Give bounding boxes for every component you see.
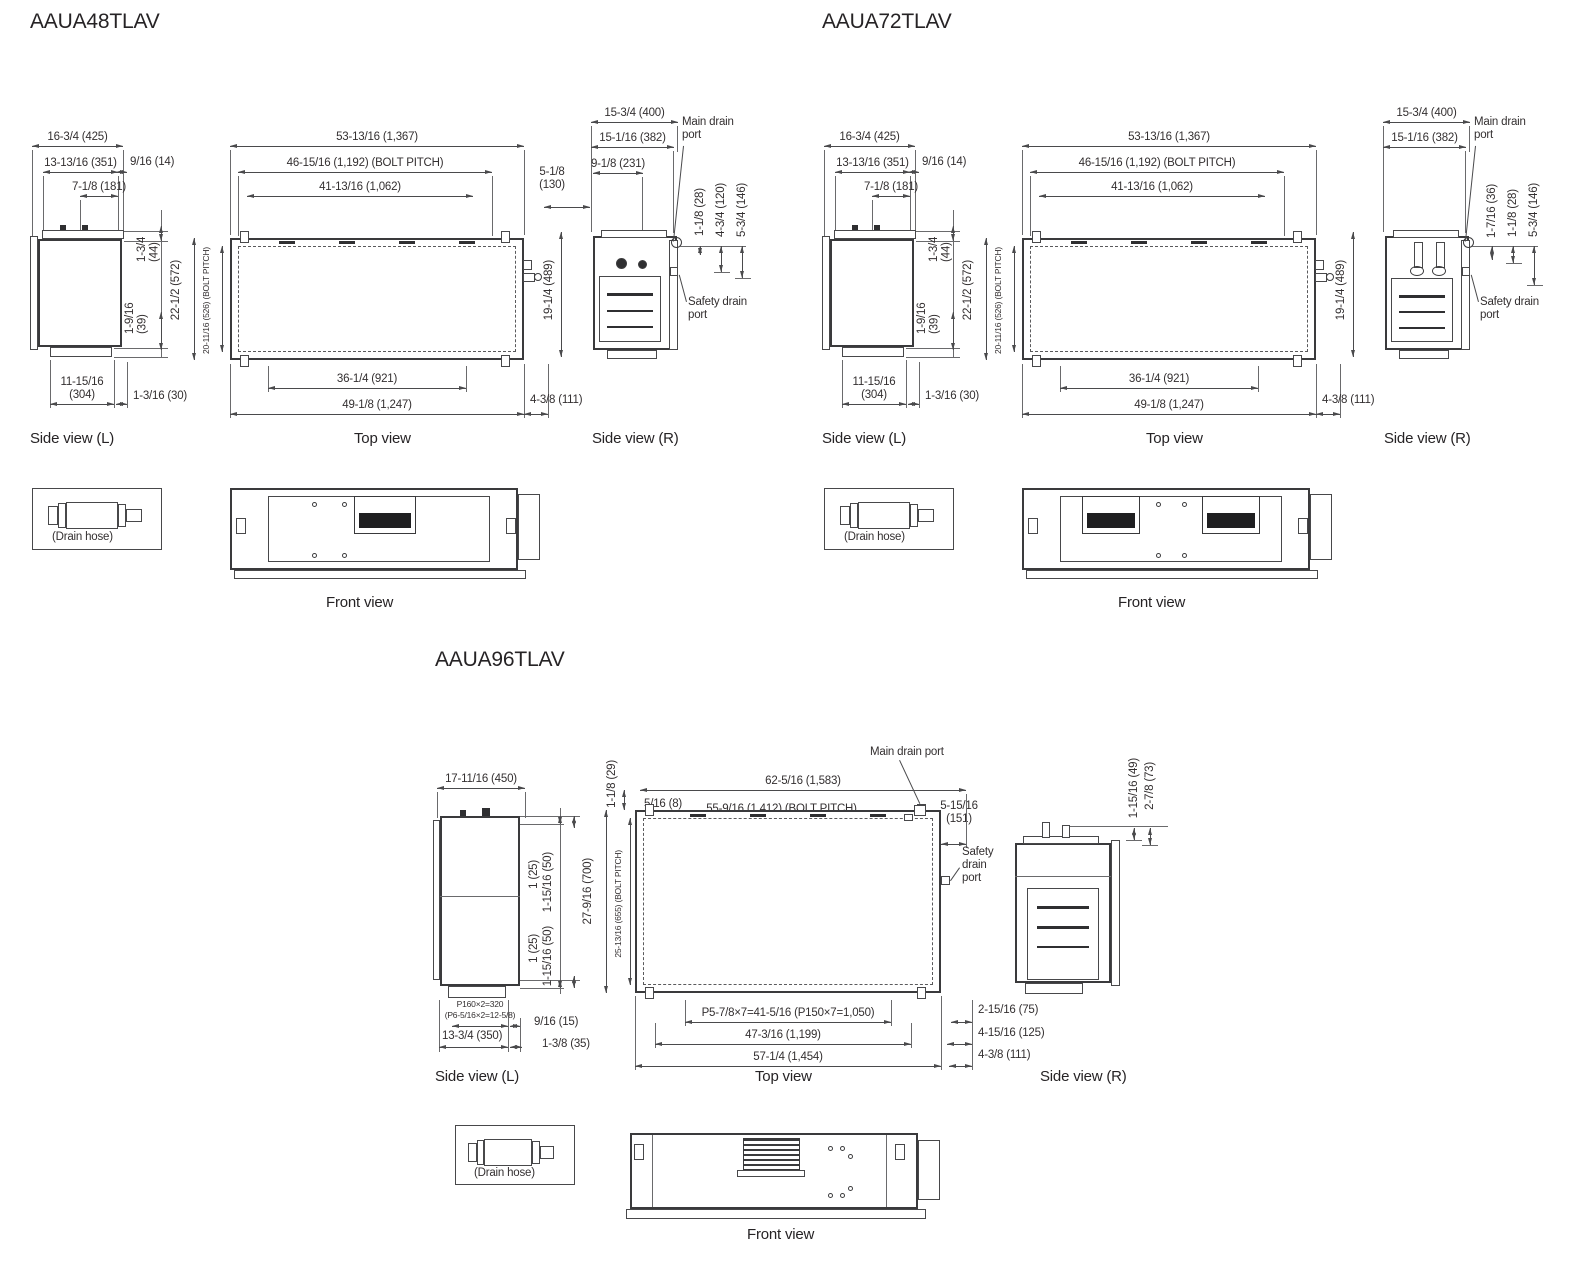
ext-line [972,1000,973,1070]
bolt [874,225,880,230]
bolt-tab [917,987,926,999]
callout-main-drain: Main drain port [1474,116,1538,142]
ext-line [1469,126,1470,152]
dim-line: 36-1/4 (921) [1060,388,1258,389]
unit-flange [607,350,657,359]
callout-safety-drain: Safety drain port [688,296,754,322]
dim-label: 41-13/16 (1,062) [319,181,401,194]
ext-line [835,176,836,236]
dim-label-v: 22-1/2 (572) [170,260,182,320]
bolt-dot [1182,502,1187,507]
bolt-dot [312,502,317,507]
drain-hose-part [484,1139,532,1166]
dim-label-v: 25-13/16 (655) (BOLT PITCH) [614,850,623,958]
bracket [1028,518,1038,534]
louver-panel [599,276,661,342]
ext-line [520,988,564,989]
ext-line [941,996,942,1070]
drain-hose-part [118,504,126,527]
pipe [1042,822,1050,838]
bracket [895,1144,905,1160]
drain-hose-part [48,506,58,525]
dim-label: 13-3/4 (350) [442,1030,502,1043]
dim-label: 13-13/16 (351) [44,157,117,170]
dim-label: P160×2=320 [457,1000,504,1010]
unit-top-inner-dashed [643,818,933,985]
unit-flange [50,347,112,357]
dim-line: 15-3/4 (400) [591,122,678,123]
bracket [634,1144,644,1160]
callout-safety-drain: Safety drain port [1480,296,1546,322]
callout-main-drain: Main drain port [870,746,944,759]
dim-line: 36-1/4 (921) [268,388,466,389]
front-protrusion [918,1140,940,1200]
view-label-side-r: Side view (R) [1040,1068,1127,1085]
louver-line [1037,946,1089,948]
ext-line [230,150,231,235]
model-title: AAUA48TLAV [30,10,160,34]
dim-label: 49-1/8 (1,247) [342,399,411,412]
callout-main-drain: Main drain port [682,116,746,142]
dim-label: 15-3/4 (400) [604,107,664,120]
unit-body [830,239,914,347]
leader-line [950,867,960,881]
unit-flange [842,347,904,357]
dim-label: 41-13/16 (1,062) [1111,181,1193,194]
dim-line: 15-3/4 (400) [1383,122,1470,123]
dim-line-v [624,790,625,810]
flange-mark [750,814,766,817]
dim-line: 11-15/16 (304) [50,404,114,405]
dim-label: 46-15/16 (1,192) (BOLT PITCH) [287,157,444,170]
bracket [236,518,246,534]
dim-line-v [1014,246,1015,352]
ext-line [635,996,636,1070]
bolt-tab [1032,355,1041,367]
dim-line: 11-15/16 (304) [842,404,906,405]
dim-label-v: 19-1/4 (489) [1335,260,1347,320]
bolt-dot [840,1146,845,1151]
bolt-dot [828,1193,833,1198]
dim-line [452,1026,508,1027]
front-protrusion [518,494,540,560]
safety-drain-port [670,267,678,276]
ext-line [520,824,564,825]
ext-line [842,360,843,408]
dim-line-v [630,818,631,985]
ext-line [32,150,33,236]
drain-hose-part [477,1140,484,1165]
flange-mark [339,241,355,244]
dim-label-v: 19-1/4 (489) [543,260,555,320]
dim-label-v: 1-9/16 (39) [916,286,941,334]
pipe [1436,242,1445,268]
dim-line: 15-1/16 (382) [1383,147,1466,148]
drain-hose-part [540,1146,554,1159]
ext-line [1258,366,1259,392]
pipe-fitting [534,273,542,281]
dim-label-v: 20-11/16 (526) (BOLT PITCH) [202,247,211,354]
dim-line-v [1492,246,1493,260]
vent-louver [1087,513,1135,527]
dim-label: 17-11/16 (450) [445,773,517,786]
ext-line [1383,126,1384,232]
flange-mark [459,241,475,244]
dim-label: 4-3/8 (111) [978,1049,1030,1062]
ext-line [1022,364,1023,418]
ext-line [673,151,674,233]
bolt-tab [645,804,654,816]
dim-line: 47-3/16 (1,199) [655,1044,911,1045]
dim-line: 7-1/8 (181) [872,196,910,197]
dim-line: 57-1/4 (1,454) [635,1066,941,1067]
dim-label: 4-3/8 (111) [530,394,582,407]
ext-line [437,792,438,818]
ext-line [1527,285,1543,286]
dim-label: 57-1/4 (1,454) [753,1051,822,1064]
louver-panel [1027,888,1099,980]
ext-line [43,176,44,236]
dim-line-v [1353,232,1354,357]
dim-line-v [700,246,701,255]
dim-label: 53-13/16 (1,367) [1128,131,1210,144]
unit-right-strip [1461,240,1470,350]
dim-line: 49-1/8 (1,247) [1022,414,1316,415]
dim-line-v [721,246,722,272]
bolt-dot [312,553,317,558]
dim-label: 53-13/16 (1,367) [336,131,418,144]
dim-line-v [606,810,607,993]
bolt-dot [848,1154,853,1159]
bolt-tab [645,987,654,999]
dim-label: 11-15/16 (304) [52,376,112,402]
vent-louver [359,513,411,527]
dim-label: 36-1/4 (921) [1129,373,1189,386]
ext-line [1022,150,1023,235]
dim-line: 62-5/16 (1,583) [640,790,966,791]
leader-line [679,275,687,302]
bolt-tab [501,231,510,243]
front-base [626,1209,926,1219]
section-aaua96: AAUA96TLAV 17-11/16 (450) 1 (25) 1-15/16… [430,648,1210,1268]
dim-label: 5-15/16 (151) [936,800,982,826]
dim-label: 7-1/8 (181) [72,181,126,194]
view-label-top: Top view [1146,430,1203,447]
view-label-front: Front view [747,1226,814,1243]
dim-line [116,404,127,405]
dim-label-v: 2-7/8 (73) [1144,762,1156,810]
bolt-dot [1182,553,1187,558]
pipe [1062,825,1070,838]
unit-top-plate [1393,230,1459,238]
pipe-stub [1315,260,1324,270]
dim-line-v [161,226,162,241]
flange-mark [399,241,415,244]
port-circle [616,258,627,269]
dim-label-v: 1 (25) [528,860,540,889]
pipe-stub [904,814,913,821]
dim-line: 15-1/16 (382) [591,147,674,148]
drain-hose-label: (Drain hose) [844,531,905,544]
dim-label: 11-15/16 (304) [844,376,904,402]
ext-line [1070,826,1168,827]
flange-mark [1251,241,1267,244]
dim-label: 7-1/8 (181) [864,181,918,194]
dim-line: 53-13/16 (1,367) [1022,146,1316,147]
unit-top-inner-dashed [238,246,516,352]
view-label-front: Front view [1118,594,1185,611]
ext-line [114,357,168,358]
unit-right-strip [669,240,678,350]
vent [354,496,416,534]
unit-body [38,239,122,347]
dim-line: 9-1/8 (231) [593,173,643,174]
dim-line-v [953,226,954,241]
ext-line [1340,364,1341,418]
ext-line [906,360,907,408]
drain-hose-part [850,503,858,528]
drain-hose-part [66,502,118,529]
dim-label: 15-1/16 (382) [599,132,665,145]
ext-line [524,150,525,235]
unit-divider [1015,876,1111,877]
ext-line [891,1000,892,1026]
pipe [1414,242,1423,268]
ext-line [525,792,526,818]
bolt-tab [1032,231,1041,243]
louver-line [607,326,653,328]
model-title: AAUA96TLAV [435,648,565,672]
bolt-dot [342,502,347,507]
unit-flange [448,986,506,998]
dim-line: 53-13/16 (1,367) [230,146,524,147]
dim-line [908,172,919,173]
dim-line-v [560,980,561,988]
dim-line-v [161,312,162,350]
dim-label-v: 1-1/8 (29) [606,760,618,808]
front-panel-line [652,1135,653,1207]
unit-side-panel [30,236,38,350]
louver-line [607,293,653,296]
dim-line [510,1047,522,1048]
ext-line [520,816,580,817]
louver-line [1399,295,1445,298]
dim-label-v: 1-1/8 (28) [694,172,706,236]
drain-hose-part [58,503,66,528]
dim-label-v: 22-1/2 (572) [962,260,974,320]
flange-mark [1191,241,1207,244]
bolt-tab [1293,355,1302,367]
dim-line [947,1044,972,1045]
dim-label: 9/16 (14) [922,156,966,169]
dim-label-v: 1-3/4 (44) [136,220,161,262]
dim-line [908,404,919,405]
dim-label: 13-13/16 (351) [836,157,909,170]
ext-line [1284,176,1285,236]
dim-line [951,1022,972,1023]
ext-line [560,808,561,994]
ext-line [714,272,730,273]
leader-line [1465,146,1476,242]
dim-label-v: 1-3/4 (44) [928,220,953,262]
bracket [506,518,516,534]
bolt-dot [840,1193,845,1198]
dim-label-v: 27-9/16 (700) [582,858,594,924]
dim-label: 1-3/8 (35) [542,1038,590,1051]
drain-hose-part [126,509,142,522]
ext-line [735,278,751,279]
dim-label: 9-1/8 (231) [591,158,645,171]
louver-line [1399,311,1445,313]
dim-line-v [560,816,561,824]
ext-line [677,126,678,152]
dim-line-v [742,246,743,278]
dim-label: 1-3/16 (30) [133,390,187,403]
vent-louver [1207,513,1255,527]
flange-mark [810,814,826,817]
dim-line: 13-13/16 (351) [835,172,910,173]
dim-line: 16-3/4 (425) [824,146,915,147]
view-label-top: Top view [354,430,411,447]
dim-line-v [574,976,575,988]
bolt-tab [501,355,510,367]
bolt [82,225,88,230]
dim-label: 5-1/8 (130) [528,166,576,192]
ext-line [906,357,960,358]
dim-label-v: 1-15/16 (49) [1128,758,1140,818]
ext-line [50,360,51,408]
unit-top-plate [1023,836,1099,844]
dim-label: 46-15/16 (1,192) (BOLT PITCH) [1079,157,1236,170]
main-drain-port [914,805,926,816]
dim-label: 62-5/16 (1,583) [765,775,841,788]
vent [1202,496,1260,534]
pipe-flange [1432,266,1446,276]
view-label-front: Front view [326,594,393,611]
safety-drain-port [941,876,950,885]
dim-line: 41-13/16 (1,062) [247,196,473,197]
dim-label: 47-3/16 (1,199) [745,1029,821,1042]
unit-right-strip [1111,840,1120,986]
dim-label: 2-15/16 (75) [978,1004,1038,1017]
ext-line [1142,845,1158,846]
dim-line [524,414,548,415]
dim-label: 15-3/4 (400) [1396,107,1456,120]
unit-divider [440,896,520,897]
section-aaua72: AAUA72TLAV 16-3/4 (425) 13-13/16 (351) 7… [816,10,1561,622]
louver-panel [1391,278,1453,342]
bolt-dot [1156,502,1161,507]
view-label-top: Top view [755,1068,812,1085]
dim-line-v [986,238,987,360]
ext-line [466,366,467,392]
unit-flange [1399,350,1449,359]
dim-line: 7-1/8 (181) [80,196,118,197]
dim-label-v: 5-3/4 (146) [1528,161,1540,237]
dim-label-v: 1-15/16 (50) [542,852,554,912]
dim-line: 13-13/16 (351) [43,172,118,173]
unit-side-panel [433,820,440,980]
ext-line [966,794,967,848]
bolt [852,225,858,230]
dim-label-v: 1-7/16 (36) [1486,170,1498,238]
dim-line [1316,414,1340,415]
dim-line [510,1026,520,1027]
view-label-side-l: Side view (L) [822,430,906,447]
dim-label: 9/16 (15) [534,1016,578,1029]
bolt-dot [342,553,347,558]
dim-line-v [1134,828,1135,840]
dim-line [544,207,590,208]
dimension-drawing: AAUA48TLAV 16-3/4 (425) 13-13/16 (351) 7… [0,0,1588,1273]
ext-line [1316,364,1317,418]
ext-line [591,126,592,232]
drain-hose-label: (Drain hose) [474,1167,535,1180]
ext-line [911,1023,912,1048]
view-label-side-l: Side view (L) [435,1068,519,1085]
vent [1082,496,1140,534]
callout-safety-drain: Safety drain port [962,846,1008,885]
ext-line [1506,263,1522,264]
dim-line-v [194,238,195,360]
ext-line [238,176,239,236]
dim-label: 16-3/4 (425) [839,131,899,144]
dim-line: 49-1/8 (1,247) [230,414,524,415]
ext-line [127,362,128,408]
louver-line [607,310,653,312]
front-panel-line [886,1135,887,1207]
dim-line-v [1513,246,1514,263]
vent-grille [743,1138,800,1170]
ext-line [492,176,493,236]
dim-label-v: 1-15/16 (50) [542,926,554,986]
ext-line [548,364,549,418]
bolt-tab [1293,231,1302,243]
dim-label-v: 20-11/16 (526) (BOLT PITCH) [994,247,1003,354]
drain-hose-part [532,1141,540,1164]
dim-line: 17-11/16 (450) [437,788,525,789]
dim-label: 1-3/16 (30) [925,390,979,403]
louver-line [1399,327,1445,329]
view-label-side-r: Side view (R) [1384,430,1471,447]
ext-line [1030,176,1031,236]
dim-label-v: 1 (25) [528,934,540,963]
dim-line: 46-15/16 (1,192) (BOLT PITCH) [1030,172,1284,173]
bolt [482,808,490,816]
dim-line-v [953,312,954,350]
bolt-tab [240,355,249,367]
ext-line [1316,150,1317,235]
flange-mark [1071,241,1087,244]
port-circle [638,260,647,269]
dim-label-v: 5-3/4 (146) [736,161,748,237]
dim-label-v: 1-9/16 (39) [124,286,149,334]
bolt [60,225,66,230]
ext-line [680,246,746,247]
ext-line [1465,151,1466,233]
front-protrusion [1310,494,1332,560]
unit-top-inner-dashed [1030,246,1308,352]
flange-mark [870,814,886,817]
drain-hose-label: (Drain hose) [52,531,113,544]
unit-flange [1025,983,1083,994]
dim-line [941,844,966,845]
ext-line [230,364,231,418]
unit-top-plate [601,230,667,238]
dim-label: 4-15/16 (125) [978,1027,1044,1040]
leader-line [673,146,684,242]
dim-label: (P6-5/16×2=12-5/8) [445,1011,516,1021]
